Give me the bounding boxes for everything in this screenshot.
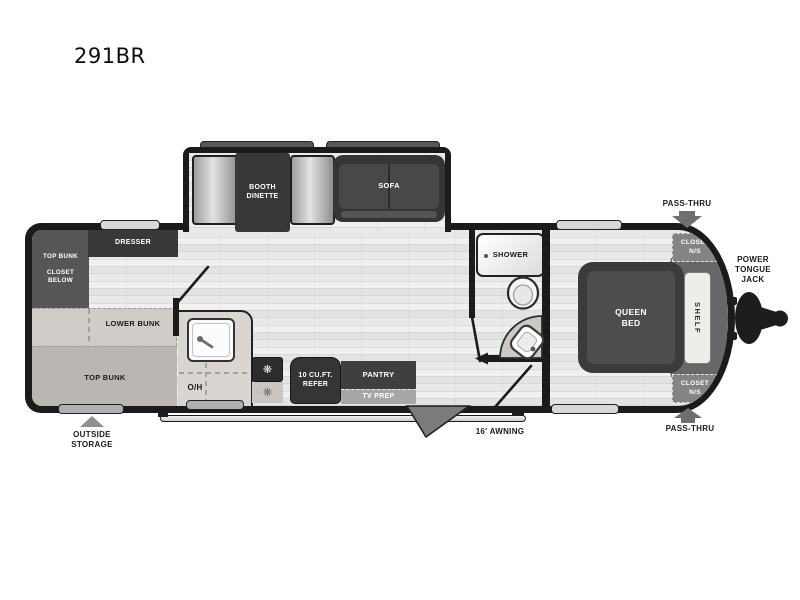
pass-thru-top-label: PASS-THRU bbox=[650, 199, 724, 209]
storage-door-kitchen-bottom bbox=[186, 400, 244, 410]
slide-out: BOOTH DINETTE SOFA bbox=[183, 147, 451, 232]
sofa: SOFA bbox=[333, 155, 445, 222]
dresser: DRESSER bbox=[88, 230, 178, 257]
awning-mount-left bbox=[158, 412, 168, 417]
bunk-closet: TOP BUNK CLOSET BELOW bbox=[32, 230, 89, 308]
power-tongue-jack-label: POWER TONGUE JACK bbox=[720, 255, 786, 285]
shower-label: SHOWER bbox=[493, 250, 529, 259]
oven-front: ❋ bbox=[252, 382, 283, 403]
toilet-icon bbox=[508, 278, 538, 309]
closet-top-label: CLOSET N/S bbox=[681, 239, 709, 255]
outside-storage-arrow-icon bbox=[80, 416, 104, 427]
refer-label: 10 CU.FT. REFER bbox=[298, 372, 332, 390]
shelf-label: SHELF bbox=[693, 302, 702, 334]
queen-bed-label: QUEEN BED bbox=[578, 262, 684, 373]
closet-top: CLOSET N/S bbox=[672, 233, 718, 262]
sofa-seat-edge bbox=[341, 211, 437, 218]
window-bedroom-top bbox=[556, 220, 622, 230]
pantry: PANTRY bbox=[341, 361, 416, 389]
closet-bottom-label: CLOSET N/S bbox=[681, 380, 709, 396]
bed-shelf: SHELF bbox=[684, 272, 711, 364]
stove: ❋ bbox=[252, 357, 283, 382]
window-bunk-top bbox=[100, 220, 160, 230]
pantry-label: PANTRY bbox=[363, 370, 395, 379]
shower: SHOWER bbox=[476, 233, 545, 277]
burner-icon: ❋ bbox=[263, 363, 272, 376]
lower-bunk-label: LOWER BUNK bbox=[87, 319, 179, 328]
sofa-label: SOFA bbox=[333, 181, 445, 190]
queen-bed: QUEEN BED bbox=[578, 262, 684, 373]
shower-head-icon bbox=[484, 254, 488, 258]
tv-prep-label: TV PREP bbox=[362, 393, 394, 402]
bunk-closet-label: TOP BUNK CLOSET BELOW bbox=[43, 253, 78, 286]
slide-out-floor: BOOTH DINETTE SOFA bbox=[189, 153, 445, 232]
booth-dinette-table: BOOTH DINETTE bbox=[235, 153, 290, 232]
dresser-label: DRESSER bbox=[115, 239, 151, 248]
burner-icon: ❋ bbox=[263, 386, 272, 399]
kitchen-sink bbox=[187, 318, 235, 362]
storage-door-bunk-bottom bbox=[58, 404, 124, 414]
awning-label: 16' AWNING bbox=[455, 427, 545, 437]
awning-mount-right bbox=[512, 411, 524, 416]
floor-plan-page: 291BR TOP BUNK CLOSET BELOW DRESSER LOWE… bbox=[0, 0, 800, 600]
tv-prep: TV PREP bbox=[341, 389, 416, 404]
booth-dinette-label: BOOTH DINETTE bbox=[246, 184, 278, 202]
refrigerator: 10 CU.FT. REFER bbox=[290, 357, 341, 404]
dinette-bench-right bbox=[290, 155, 335, 225]
dinette-bench-left bbox=[192, 155, 239, 225]
overhead-cabinet-label: O/H bbox=[178, 383, 212, 393]
interior-floor: TOP BUNK CLOSET BELOW DRESSER LOWER BUNK… bbox=[32, 230, 728, 406]
bathroom-sink-icon bbox=[500, 316, 546, 361]
closet-bottom: CLOSET N/S bbox=[672, 374, 718, 403]
sink-basin bbox=[192, 323, 230, 357]
model-title: 291BR bbox=[74, 44, 146, 68]
awning-bar bbox=[160, 415, 526, 422]
top-bunk-label: TOP BUNK bbox=[32, 373, 178, 382]
tongue-jack-icon bbox=[727, 292, 788, 344]
window-bedroom-bottom bbox=[551, 404, 619, 414]
pass-thru-bottom-label: PASS-THRU bbox=[652, 424, 728, 434]
outside-storage-label: OUTSIDE STORAGE bbox=[57, 430, 127, 450]
